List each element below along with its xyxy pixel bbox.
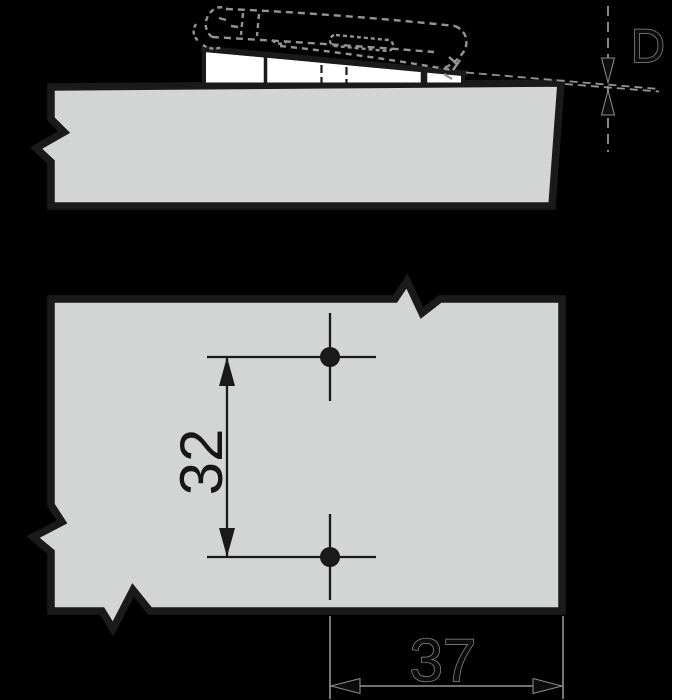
dimension-37-label: 37: [410, 627, 477, 694]
right-margin-strip: [672, 0, 700, 700]
phantom-plate-top-dash-2: [231, 26, 238, 27]
dimension-d-label: D: [631, 19, 665, 72]
bottom-drill-hole: [320, 547, 340, 567]
plan-view-panel: [33, 281, 562, 629]
side-view-panel: [36, 83, 561, 206]
hinge-plate-drilling-diagram: D 32 37: [0, 0, 700, 700]
dimension-32-label: 32: [168, 429, 235, 496]
top-drill-hole: [320, 347, 340, 367]
